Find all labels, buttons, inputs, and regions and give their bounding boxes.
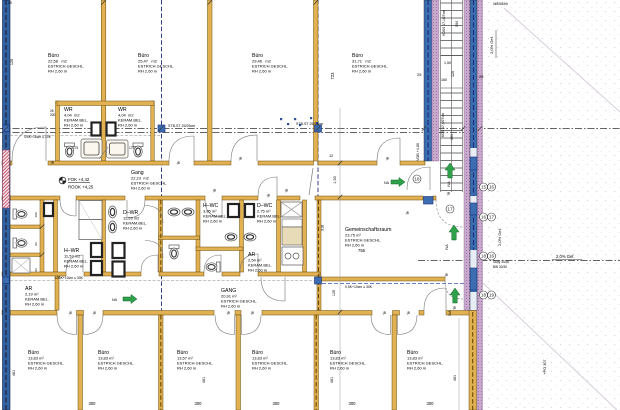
svg-text:NA: NA <box>445 244 449 250</box>
svg-text:1,50: 1,50 <box>444 61 451 65</box>
svg-text:RH 2,60 m: RH 2,60 m <box>203 219 223 224</box>
svg-text:15: 15 <box>481 185 487 190</box>
svg-text:NA: NA <box>448 310 452 316</box>
svg-text:19: 19 <box>489 293 495 298</box>
svg-text:0k5/5/82m: 0k5/5/82m <box>493 2 508 6</box>
svg-text:723: 723 <box>330 72 335 80</box>
svg-text:RH 2,60 m: RH 2,60 m <box>123 226 143 231</box>
svg-text:25: 25 <box>8 1 12 5</box>
svg-text:RH 2,60 m: RH 2,60 m <box>28 366 48 371</box>
svg-text:17: 17 <box>447 207 453 212</box>
svg-text:93: 93 <box>34 268 38 272</box>
svg-text:16: 16 <box>489 254 495 259</box>
svg-text:17: 17 <box>489 215 495 220</box>
svg-text:100: 100 <box>34 212 38 217</box>
svg-text:∙|B: ∙|B <box>452 306 456 310</box>
svg-text:461: 461 <box>202 377 206 383</box>
svg-text:RH 2,60 m: RH 2,60 m <box>64 264 84 269</box>
svg-text:∙|B: ∙|B <box>266 194 270 198</box>
svg-text:≤05K+10cm ≤ 30K: ≤05K+10cm ≤ 30K <box>55 276 84 280</box>
svg-text:RH 2,60 m: RH 2,60 m <box>330 366 350 371</box>
svg-text:18: 18 <box>481 254 487 259</box>
svg-text:120: 120 <box>451 71 455 77</box>
svg-text:RH 2,60 m: RH 2,60 m <box>252 366 272 371</box>
svg-text:2,0% Gef.: 2,0% Gef. <box>556 254 575 259</box>
svg-text:300: 300 <box>89 401 97 406</box>
svg-text:0,5K+10cm ≤ 30K: 0,5K+10cm ≤ 30K <box>345 285 373 289</box>
svg-text:461: 461 <box>330 377 334 383</box>
svg-text:25: 25 <box>479 74 484 79</box>
svg-text:461: 461 <box>453 375 457 381</box>
svg-text:∙|B: ∙|B <box>238 157 242 161</box>
svg-text:300: 300 <box>195 401 203 406</box>
svg-text:∙|B: ∙|B <box>385 157 389 161</box>
svg-text:0/5K+16cm ≤ 10K: 0/5K+16cm ≤ 10K <box>24 135 52 139</box>
svg-text:ROOK +4,25: ROOK +4,25 <box>68 185 94 190</box>
svg-text:NA: NA <box>384 181 390 185</box>
svg-text:∙|B: ∙|B <box>212 189 216 193</box>
svg-text:1,50: 1,50 <box>333 176 337 183</box>
svg-text:∙|B: ∙|B <box>405 211 409 215</box>
svg-text:∙|B: ∙|B <box>406 311 410 315</box>
svg-text:RH 2,60 m: RH 2,60 m <box>352 69 372 74</box>
svg-text:STB.ST 25/25cm: STB.ST 25/25cm <box>296 122 323 126</box>
svg-text:16: 16 <box>489 185 495 190</box>
svg-text:2,0% Gef.: 2,0% Gef. <box>489 36 494 54</box>
svg-text:125: 125 <box>332 290 336 296</box>
svg-text:∙|B: ∙|B <box>92 311 96 315</box>
svg-text:RH 2,60 m: RH 2,60 m <box>118 123 138 128</box>
svg-text:∙|B: ∙|B <box>68 311 72 315</box>
svg-text:RH 2,60 m: RH 2,60 m <box>257 219 277 224</box>
svg-text:RH 2,60 m: RH 2,60 m <box>25 302 45 307</box>
svg-text:RH 2,60 m: RH 2,60 m <box>248 268 268 273</box>
svg-text:VOSS 17,1/27cm: VOSS 17,1/27cm <box>442 10 446 36</box>
svg-text:∙|B: ∙|B <box>50 161 54 165</box>
svg-text:∙|B: ∙|B <box>250 311 254 315</box>
svg-text:2,0% Gef.: 2,0% Gef. <box>497 228 502 246</box>
svg-text:RH 2,60 m: RH 2,60 m <box>345 243 365 248</box>
svg-text:∙|B: ∙|B <box>444 273 448 277</box>
svg-text:∙|B: ∙|B <box>446 192 450 196</box>
svg-text:120: 120 <box>10 59 14 65</box>
svg-text:461: 461 <box>12 370 16 376</box>
svg-text:RH 2,60 m: RH 2,60 m <box>252 69 272 74</box>
svg-text:FOK +4,42: FOK +4,42 <box>68 177 90 182</box>
svg-text:160: 160 <box>441 78 447 82</box>
svg-text:RH 2,60 m: RH 2,60 m <box>98 366 118 371</box>
svg-text:300: 300 <box>349 401 357 406</box>
svg-text:RH 2,60 m: RH 2,60 m <box>138 69 158 74</box>
svg-text:200: 200 <box>50 113 56 117</box>
svg-text:18: 18 <box>481 293 487 298</box>
svg-text:16: 16 <box>481 215 487 220</box>
svg-text:RH 2,60 m: RH 2,60 m <box>407 366 427 371</box>
svg-text:RH 2,60 m: RH 2,60 m <box>131 186 151 191</box>
svg-text:NA: NA <box>447 181 451 187</box>
svg-text:KGS 17,4/27cm: KGS 17,4/27cm <box>441 113 445 137</box>
svg-text:STB.ST 25/25cm: STB.ST 25/25cm <box>168 124 195 128</box>
svg-text:RH 2,60 m: RH 2,60 m <box>48 69 68 74</box>
svg-text:318: 318 <box>321 225 325 231</box>
svg-text:394: 394 <box>455 21 459 27</box>
svg-text:18: 18 <box>414 177 420 182</box>
svg-text:RH 2,60 m: RH 2,60 m <box>177 366 197 371</box>
svg-text:175: 175 <box>73 146 79 150</box>
svg-text:RH 2,60 m: RH 2,60 m <box>221 304 241 309</box>
svg-text:191: 191 <box>450 134 454 140</box>
svg-text:300: 300 <box>273 401 281 406</box>
svg-text:12: 12 <box>329 154 333 158</box>
svg-text:300: 300 <box>427 401 435 406</box>
svg-text:∙|B: ∙|B <box>176 161 180 165</box>
svg-text:BW 30/30: BW 30/30 <box>493 265 507 269</box>
svg-text:+PO 307: +PO 307 <box>543 359 547 374</box>
svg-text:∙|B: ∙|B <box>226 311 230 315</box>
svg-text:93: 93 <box>34 242 38 246</box>
svg-text:VOB +4,80: VOB +4,80 <box>416 143 420 161</box>
svg-text:RH 2,60 m: RH 2,60 m <box>64 123 84 128</box>
svg-text:Gully 34/30: Gully 34/30 <box>493 260 509 264</box>
svg-text:175: 175 <box>129 146 135 150</box>
svg-text:25: 25 <box>417 72 422 77</box>
svg-text:755: 755 <box>358 248 366 253</box>
svg-text:∙|B: ∙|B <box>382 311 386 315</box>
svg-text:NA: NA <box>112 298 118 302</box>
svg-text:∙|B: ∙|B <box>284 189 288 193</box>
